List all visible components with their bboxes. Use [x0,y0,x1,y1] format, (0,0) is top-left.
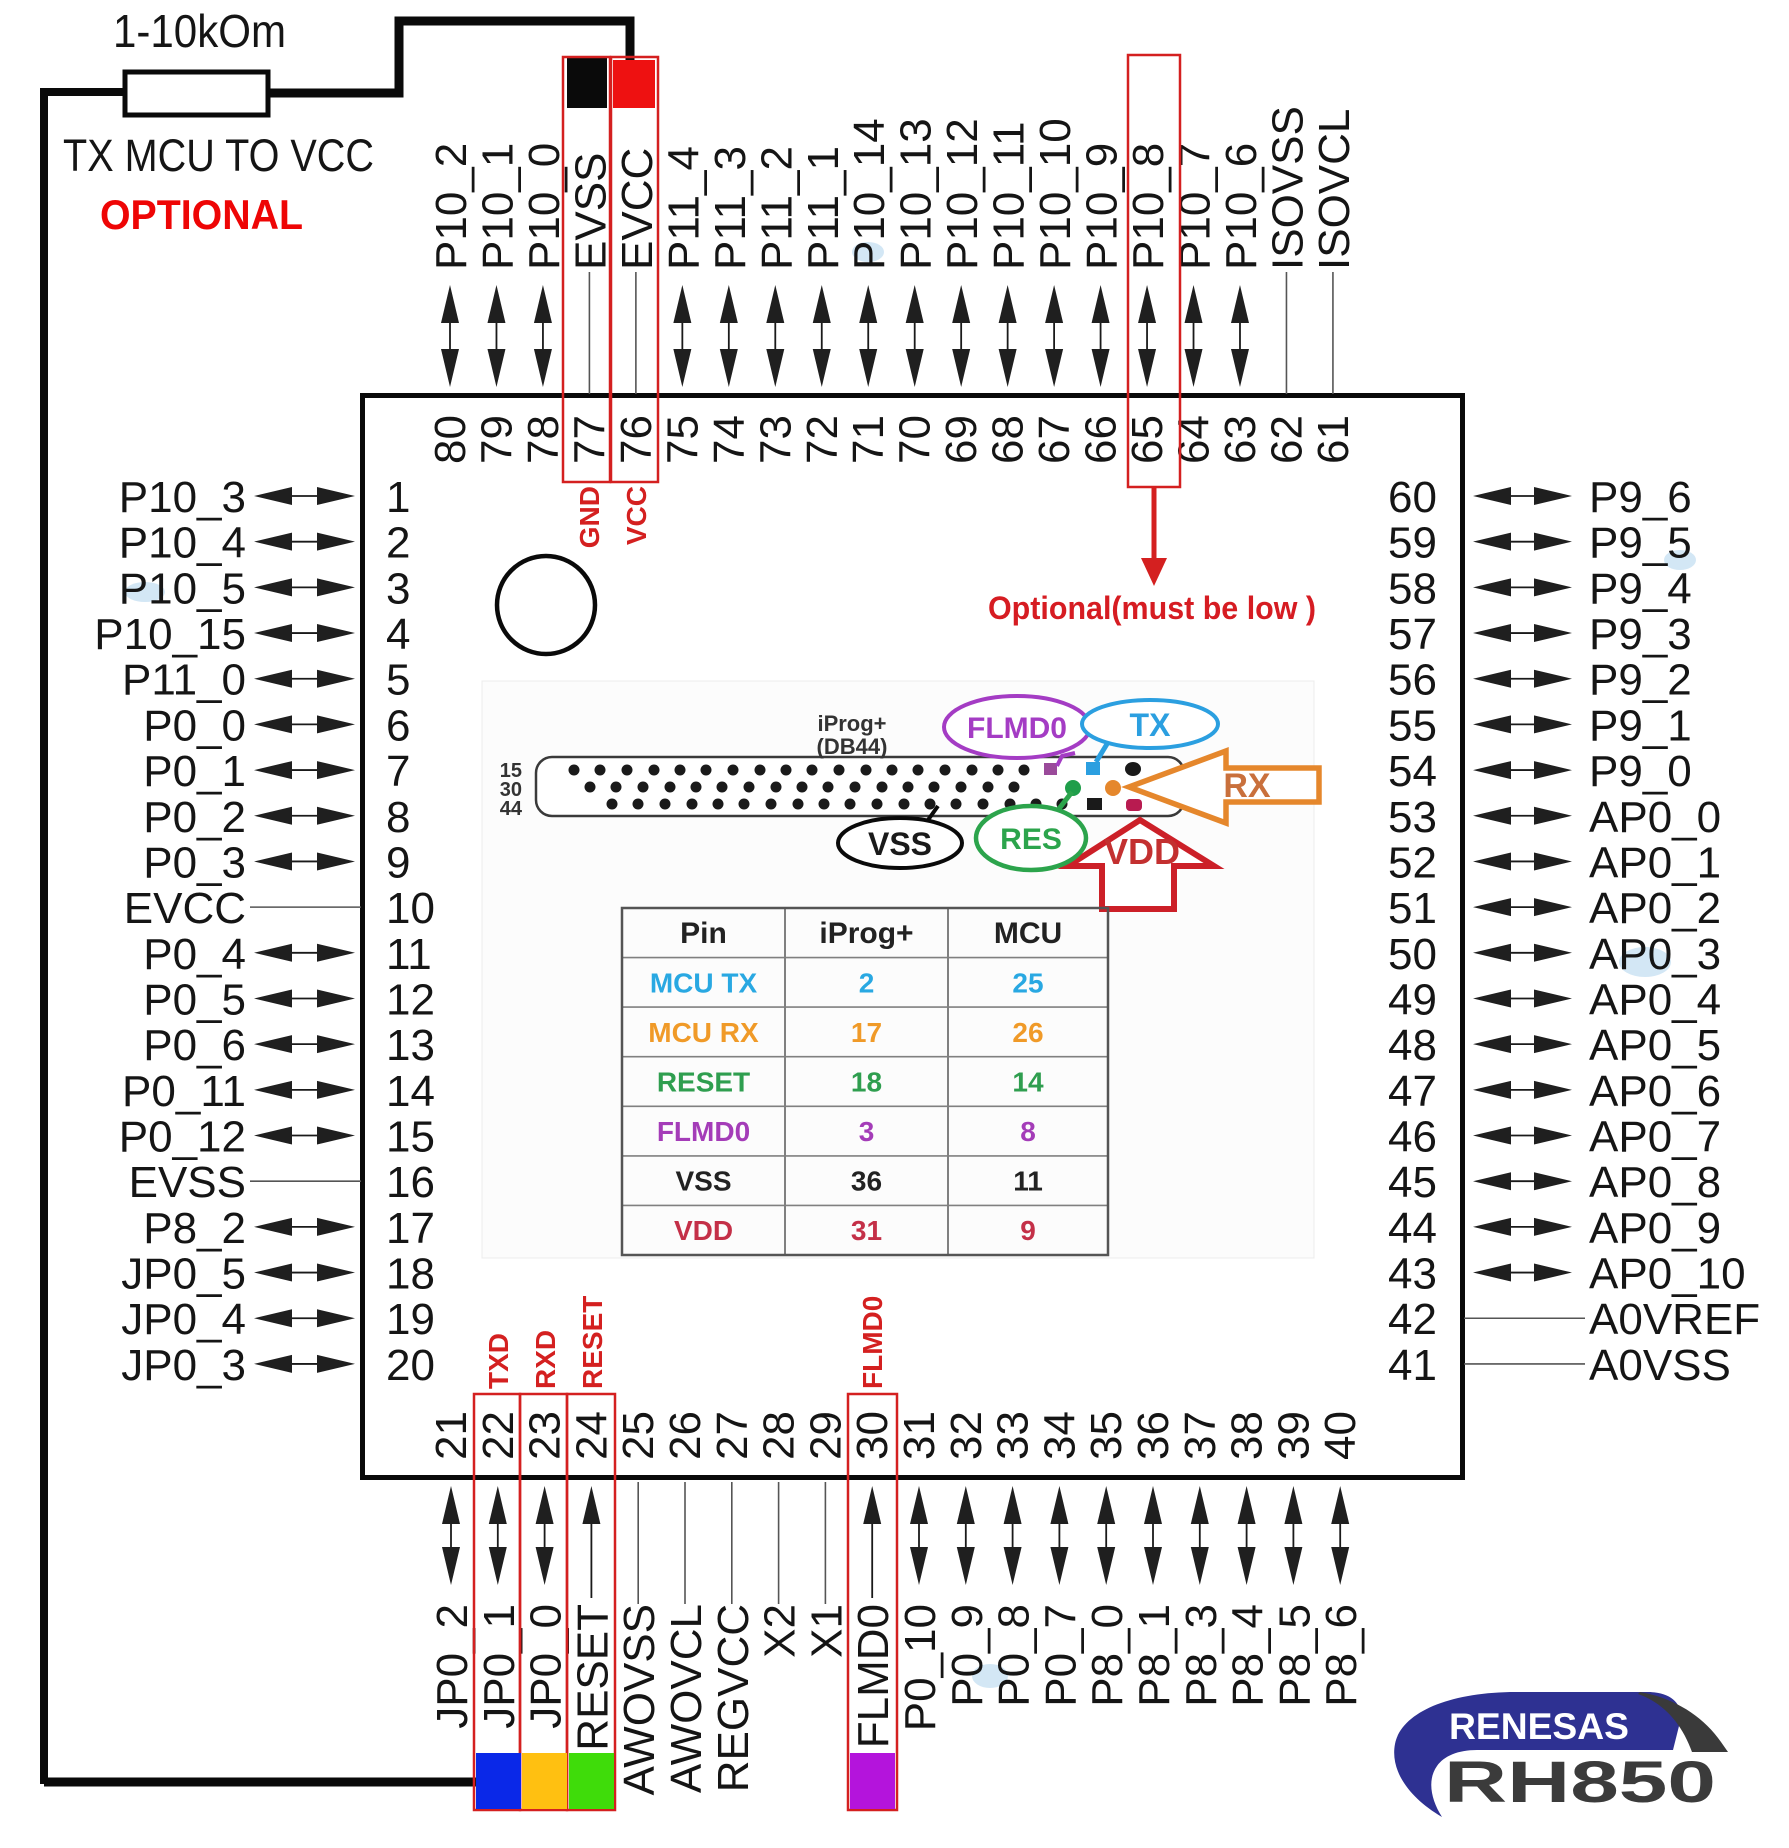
svg-text:34: 34 [1035,1411,1084,1460]
svg-text:52: 52 [1388,838,1437,887]
svg-text:P0_4: P0_4 [143,930,246,979]
svg-text:VSS: VSS [675,1166,731,1197]
svg-text:FLMD0: FLMD0 [857,1296,888,1389]
svg-text:2: 2 [386,519,410,568]
svg-text:77: 77 [565,415,614,464]
svg-text:58: 58 [1388,564,1437,613]
svg-text:EVSS: EVSS [129,1158,246,1207]
svg-text:3: 3 [386,564,410,613]
svg-text:RX: RX [1223,767,1271,805]
svg-text:14: 14 [1012,1067,1044,1098]
svg-text:25: 25 [614,1411,663,1460]
svg-text:41: 41 [1388,1341,1437,1390]
svg-text:EVCC: EVCC [124,884,246,933]
svg-text:3: 3 [859,1116,875,1147]
svg-text:22: 22 [474,1411,523,1460]
svg-text:44: 44 [1388,1204,1437,1253]
svg-text:AWOVCL: AWOVCL [662,1604,711,1793]
svg-text:P8_5: P8_5 [1270,1604,1319,1707]
svg-text:P8_4: P8_4 [1224,1604,1273,1707]
svg-text:AP0_9: AP0_9 [1589,1204,1721,1253]
svg-text:67: 67 [1030,415,1079,464]
svg-text:P0_10: P0_10 [896,1604,945,1731]
svg-text:39: 39 [1269,1411,1318,1460]
svg-text:36: 36 [1129,1411,1178,1460]
svg-text:VDD: VDD [1104,831,1180,872]
svg-text:P0_5: P0_5 [143,975,246,1024]
svg-text:32: 32 [942,1411,991,1460]
svg-text:63: 63 [1216,415,1265,464]
svg-text:RH850: RH850 [1444,1750,1716,1815]
svg-text:P10_2: P10_2 [427,143,476,270]
svg-text:60: 60 [1388,473,1437,522]
svg-text:51: 51 [1388,884,1437,933]
svg-text:JP0_3: JP0_3 [121,1341,246,1390]
svg-text:iProg+: iProg+ [819,917,913,950]
svg-text:AP0_4: AP0_4 [1589,975,1721,1024]
svg-text:69: 69 [937,415,986,464]
svg-text:P9_6: P9_6 [1589,473,1692,522]
svg-text:AP0_1: AP0_1 [1589,838,1721,887]
svg-text:P0_6: P0_6 [143,1021,246,1070]
svg-text:ISOVSS: ISOVSS [1263,106,1312,270]
svg-text:61: 61 [1309,415,1358,464]
svg-text:17: 17 [851,1017,882,1048]
svg-text:RES: RES [1000,823,1062,856]
svg-text:AP0_7: AP0_7 [1589,1113,1721,1162]
svg-text:RESET: RESET [657,1067,750,1098]
svg-text:P10_12: P10_12 [938,118,987,270]
svg-text:21: 21 [427,1411,476,1460]
svg-text:P9_5: P9_5 [1589,519,1692,568]
svg-text:JP0_1: JP0_1 [475,1604,524,1729]
svg-text:64: 64 [1170,415,1219,464]
svg-text:P11_0: P11_0 [122,656,246,705]
svg-text:56: 56 [1388,656,1437,705]
svg-text:68: 68 [984,415,1033,464]
svg-text:P10_9: P10_9 [1078,143,1127,270]
svg-text:P9_0: P9_0 [1589,747,1692,796]
svg-text:8: 8 [386,793,410,842]
svg-text:38: 38 [1223,1411,1272,1460]
svg-text:7: 7 [386,747,410,796]
svg-text:ISOVCL: ISOVCL [1310,109,1359,270]
svg-text:P10_14: P10_14 [845,118,894,270]
svg-text:(DB44): (DB44) [817,734,888,759]
svg-text:6: 6 [386,701,410,750]
svg-text:REGVCC: REGVCC [709,1604,758,1792]
svg-text:74: 74 [705,415,754,464]
svg-text:P10_11: P10_11 [985,122,1034,270]
svg-text:15: 15 [386,1113,435,1162]
svg-text:P9_3: P9_3 [1589,610,1692,659]
svg-text:P11_1: P11_1 [799,146,848,270]
svg-text:13: 13 [386,1021,435,1070]
svg-text:VSS: VSS [868,826,932,862]
svg-text:JP0_0: JP0_0 [522,1604,571,1729]
svg-text:MCU: MCU [994,917,1062,950]
svg-text:78: 78 [519,415,568,464]
svg-text:27: 27 [708,1411,757,1460]
svg-text:P0_1: P0_1 [143,747,246,796]
svg-text:JP0_5: JP0_5 [121,1250,246,1299]
svg-text:18: 18 [386,1250,435,1299]
svg-text:35: 35 [1082,1411,1131,1460]
svg-text:P10_6: P10_6 [1217,143,1266,270]
svg-text:MCU RX: MCU RX [648,1017,759,1048]
svg-text:31: 31 [851,1215,882,1246]
svg-text:P10_3: P10_3 [119,473,246,522]
svg-text:75: 75 [658,415,707,464]
svg-text:28: 28 [755,1411,804,1460]
svg-text:14: 14 [386,1067,435,1116]
svg-text:11: 11 [386,930,432,979]
svg-text:24: 24 [567,1411,616,1460]
svg-text:AWOVSS: AWOVSS [615,1604,664,1796]
svg-text:P10_5: P10_5 [119,564,246,613]
svg-text:AP0_0: AP0_0 [1589,793,1721,842]
svg-text:P0_11: P0_11 [122,1067,246,1116]
svg-text:A0VREF: A0VREF [1589,1295,1760,1344]
svg-text:76: 76 [612,415,661,464]
svg-text:AP0_6: AP0_6 [1589,1067,1721,1116]
svg-text:P10_13: P10_13 [892,118,941,270]
svg-text:46: 46 [1388,1113,1437,1162]
svg-text:19: 19 [386,1295,435,1344]
svg-text:JP0_4: JP0_4 [121,1295,246,1344]
svg-text:31: 31 [895,1411,944,1460]
svg-text:RESET: RESET [568,1604,617,1751]
svg-text:80: 80 [426,415,475,464]
svg-text:10: 10 [386,884,435,933]
svg-text:Pin: Pin [680,917,727,950]
svg-text:EVCC: EVCC [613,148,662,270]
svg-text:P10_8: P10_8 [1124,143,1173,270]
svg-text:OPTIONAL: OPTIONAL [100,191,303,238]
svg-text:P10_4: P10_4 [119,519,246,568]
svg-text:70: 70 [891,415,940,464]
svg-text:26: 26 [1012,1017,1043,1048]
svg-text:P8_1: P8_1 [1130,1604,1179,1707]
svg-text:72: 72 [798,415,847,464]
svg-text:AP0_10: AP0_10 [1589,1250,1746,1299]
svg-text:FLMD0: FLMD0 [849,1604,898,1748]
svg-text:9: 9 [1020,1215,1036,1246]
svg-text:P0_3: P0_3 [143,838,246,887]
svg-text:GND: GND [574,486,605,548]
svg-text:23: 23 [521,1411,570,1460]
svg-text:43: 43 [1388,1250,1437,1299]
svg-text:AP0_3: AP0_3 [1589,930,1721,979]
svg-text:4: 4 [386,610,410,659]
svg-text:P10_10: P10_10 [1031,118,1080,270]
svg-text:53: 53 [1388,793,1437,842]
svg-text:FLMD0: FLMD0 [657,1116,750,1147]
svg-text:25: 25 [1012,967,1043,998]
svg-text:P8_3: P8_3 [1177,1604,1226,1707]
svg-text:59: 59 [1388,519,1437,568]
svg-text:48: 48 [1388,1021,1437,1070]
svg-text:30: 30 [848,1411,897,1460]
svg-text:P8_2: P8_2 [143,1204,246,1253]
svg-text:P10_1: P10_1 [473,143,522,270]
svg-text:62: 62 [1262,415,1311,464]
svg-text:X1: X1 [802,1604,851,1658]
svg-text:29: 29 [801,1411,850,1460]
svg-text:9: 9 [386,838,410,887]
svg-text:P0_2: P0_2 [143,793,246,842]
svg-text:TX: TX [1130,707,1172,743]
svg-text:P11_2: P11_2 [752,146,801,270]
svg-text:45: 45 [1388,1158,1437,1207]
svg-text:26: 26 [661,1411,710,1460]
svg-text:40: 40 [1316,1411,1365,1460]
svg-text:P0_7: P0_7 [1036,1604,1085,1707]
svg-text:55: 55 [1388,701,1437,750]
svg-text:A0VSS: A0VSS [1589,1341,1731,1390]
svg-text:AP0_8: AP0_8 [1589,1158,1721,1207]
svg-text:iProg+: iProg+ [817,711,886,736]
svg-text:18: 18 [851,1067,882,1098]
svg-text:1: 1 [386,473,410,522]
svg-text:65: 65 [1123,415,1172,464]
svg-text:44: 44 [500,798,523,820]
svg-text:RENESAS: RENESAS [1449,1706,1629,1747]
svg-text:P0_8: P0_8 [990,1604,1039,1707]
svg-text:P10_0: P10_0 [520,143,569,270]
svg-text:P8_6: P8_6 [1317,1604,1366,1707]
svg-text:RESET: RESET [577,1296,608,1389]
svg-text:FLMD0: FLMD0 [967,712,1067,745]
svg-text:P10_7: P10_7 [1171,143,1220,270]
svg-text:P0_0: P0_0 [143,701,246,750]
svg-text:TXD: TXD [483,1333,514,1389]
svg-text:16: 16 [386,1158,435,1207]
svg-text:AP0_2: AP0_2 [1589,884,1721,933]
svg-text:49: 49 [1388,975,1437,1024]
svg-text:JP0_2: JP0_2 [428,1604,477,1729]
svg-text:Optional(must be low ): Optional(must be low ) [988,590,1316,626]
svg-text:P0_9: P0_9 [943,1604,992,1707]
svg-text:P9_2: P9_2 [1589,656,1692,705]
svg-text:VDD: VDD [674,1215,733,1246]
svg-text:2: 2 [859,967,875,998]
svg-text:RXD: RXD [530,1330,561,1389]
svg-text:AP0_5: AP0_5 [1589,1021,1721,1070]
svg-text:54: 54 [1388,747,1437,796]
svg-text:17: 17 [386,1204,435,1253]
svg-text:TX MCU TO VCC: TX MCU TO VCC [63,130,374,181]
svg-text:8: 8 [1020,1116,1036,1147]
svg-text:57: 57 [1388,610,1437,659]
svg-text:73: 73 [751,415,800,464]
svg-text:37: 37 [1176,1411,1225,1460]
svg-text:11: 11 [1013,1166,1043,1197]
svg-text:P0_12: P0_12 [119,1113,246,1162]
svg-text:50: 50 [1388,930,1437,979]
svg-text:P11_3: P11_3 [706,146,755,270]
svg-text:79: 79 [472,415,521,464]
svg-text:12: 12 [386,975,435,1024]
svg-text:1-10kOm: 1-10kOm [113,5,286,57]
svg-text:36: 36 [851,1166,882,1197]
svg-text:MCU TX: MCU TX [650,967,758,998]
svg-text:5: 5 [386,656,410,705]
svg-text:71: 71 [844,415,893,464]
svg-text:47: 47 [1388,1067,1437,1116]
svg-text:VCC: VCC [621,486,652,545]
svg-text:P9_1: P9_1 [1589,701,1692,750]
svg-text:42: 42 [1388,1295,1437,1344]
svg-text:EVSS: EVSS [566,153,615,270]
svg-text:X2: X2 [756,1604,805,1658]
svg-text:20: 20 [386,1341,435,1390]
svg-text:P8_0: P8_0 [1083,1604,1132,1707]
svg-text:66: 66 [1077,415,1126,464]
svg-text:P11_4: P11_4 [659,146,708,270]
svg-text:P10_15: P10_15 [94,610,246,659]
svg-text:P9_4: P9_4 [1589,564,1692,613]
svg-text:33: 33 [989,1411,1038,1460]
